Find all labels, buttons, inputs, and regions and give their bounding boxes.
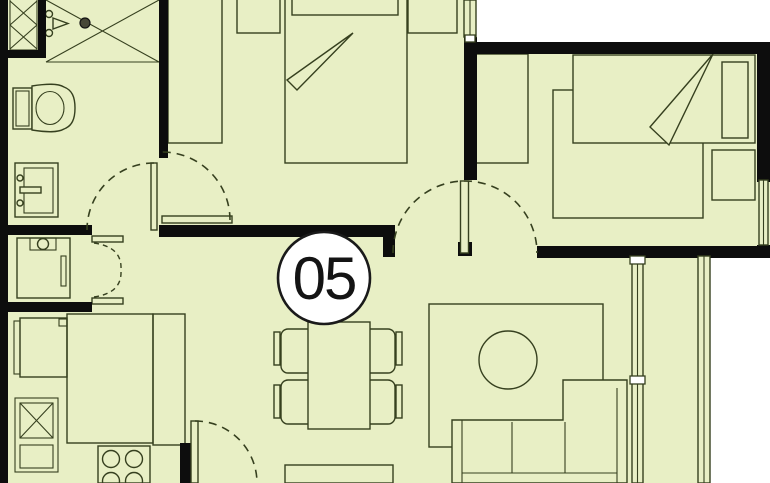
tv-cabinet bbox=[285, 465, 393, 483]
cooktop bbox=[98, 446, 150, 483]
nightstand bbox=[712, 150, 755, 200]
shower-drain bbox=[80, 18, 90, 28]
washing-machine bbox=[17, 238, 70, 298]
exterior-wall-left bbox=[0, 0, 8, 483]
door-leaf bbox=[461, 181, 469, 253]
floor-plan: 05 bbox=[0, 0, 770, 483]
faucet-icon bbox=[20, 187, 41, 193]
shower-knob bbox=[46, 30, 53, 37]
refrigerator bbox=[14, 318, 67, 377]
shower-knob bbox=[46, 11, 53, 18]
floor-plan-canvas: 05 bbox=[0, 0, 770, 483]
nightstand bbox=[408, 0, 457, 33]
balcony-railing bbox=[698, 256, 710, 483]
single-bed bbox=[573, 54, 755, 145]
nightstand bbox=[237, 0, 280, 33]
coffee-table bbox=[479, 331, 537, 389]
door-leaf bbox=[151, 163, 157, 230]
unit-number: 05 bbox=[293, 245, 356, 312]
door-leaf bbox=[162, 216, 232, 223]
sliding-door bbox=[630, 256, 645, 483]
window bbox=[759, 180, 768, 245]
door-leaf bbox=[191, 421, 198, 483]
pillow bbox=[722, 62, 748, 138]
window bbox=[464, 0, 476, 42]
unit-badge: 05 bbox=[278, 232, 370, 324]
dining-table bbox=[308, 322, 370, 429]
pillow bbox=[292, 0, 398, 15]
toilet bbox=[13, 84, 75, 132]
vanity-sink bbox=[15, 163, 58, 217]
double-bed bbox=[285, 0, 407, 163]
